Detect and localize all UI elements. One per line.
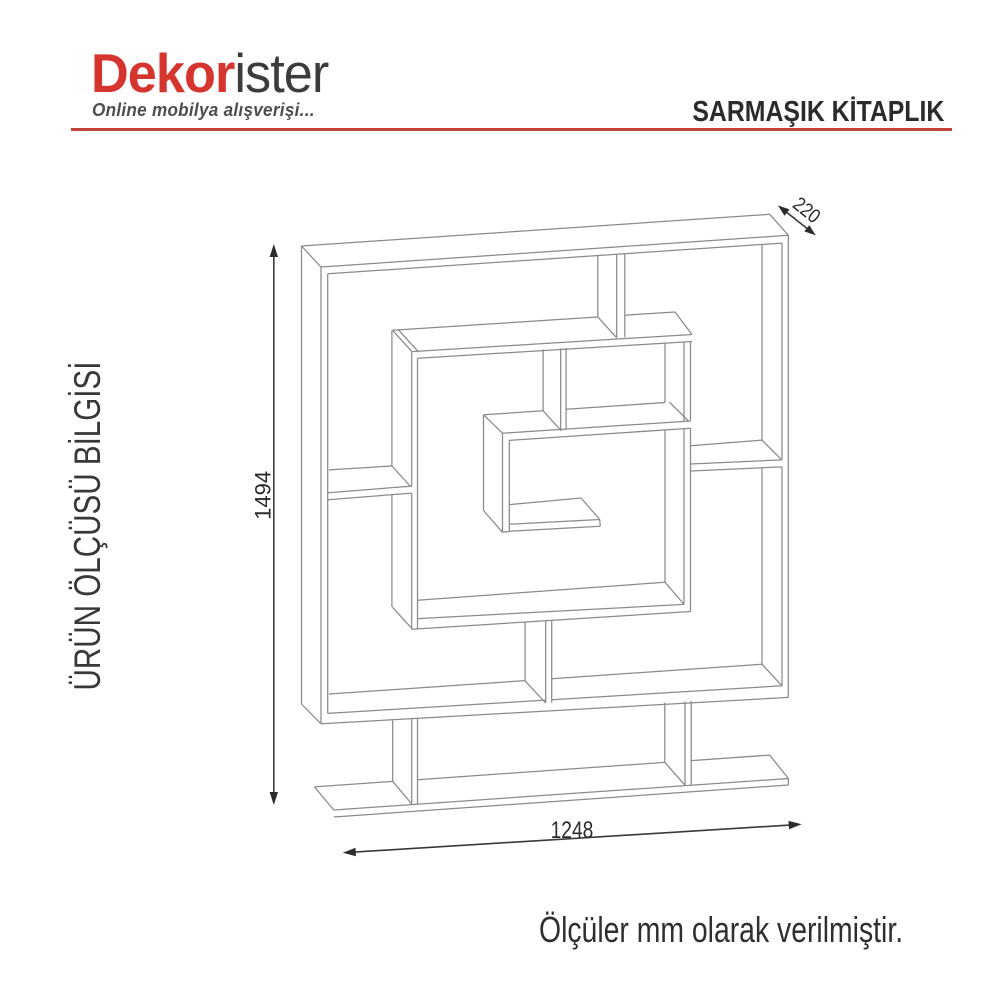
svg-text:1248: 1248 bbox=[551, 816, 594, 844]
svg-text:1494: 1494 bbox=[250, 471, 275, 520]
svg-text:220: 220 bbox=[789, 192, 825, 227]
